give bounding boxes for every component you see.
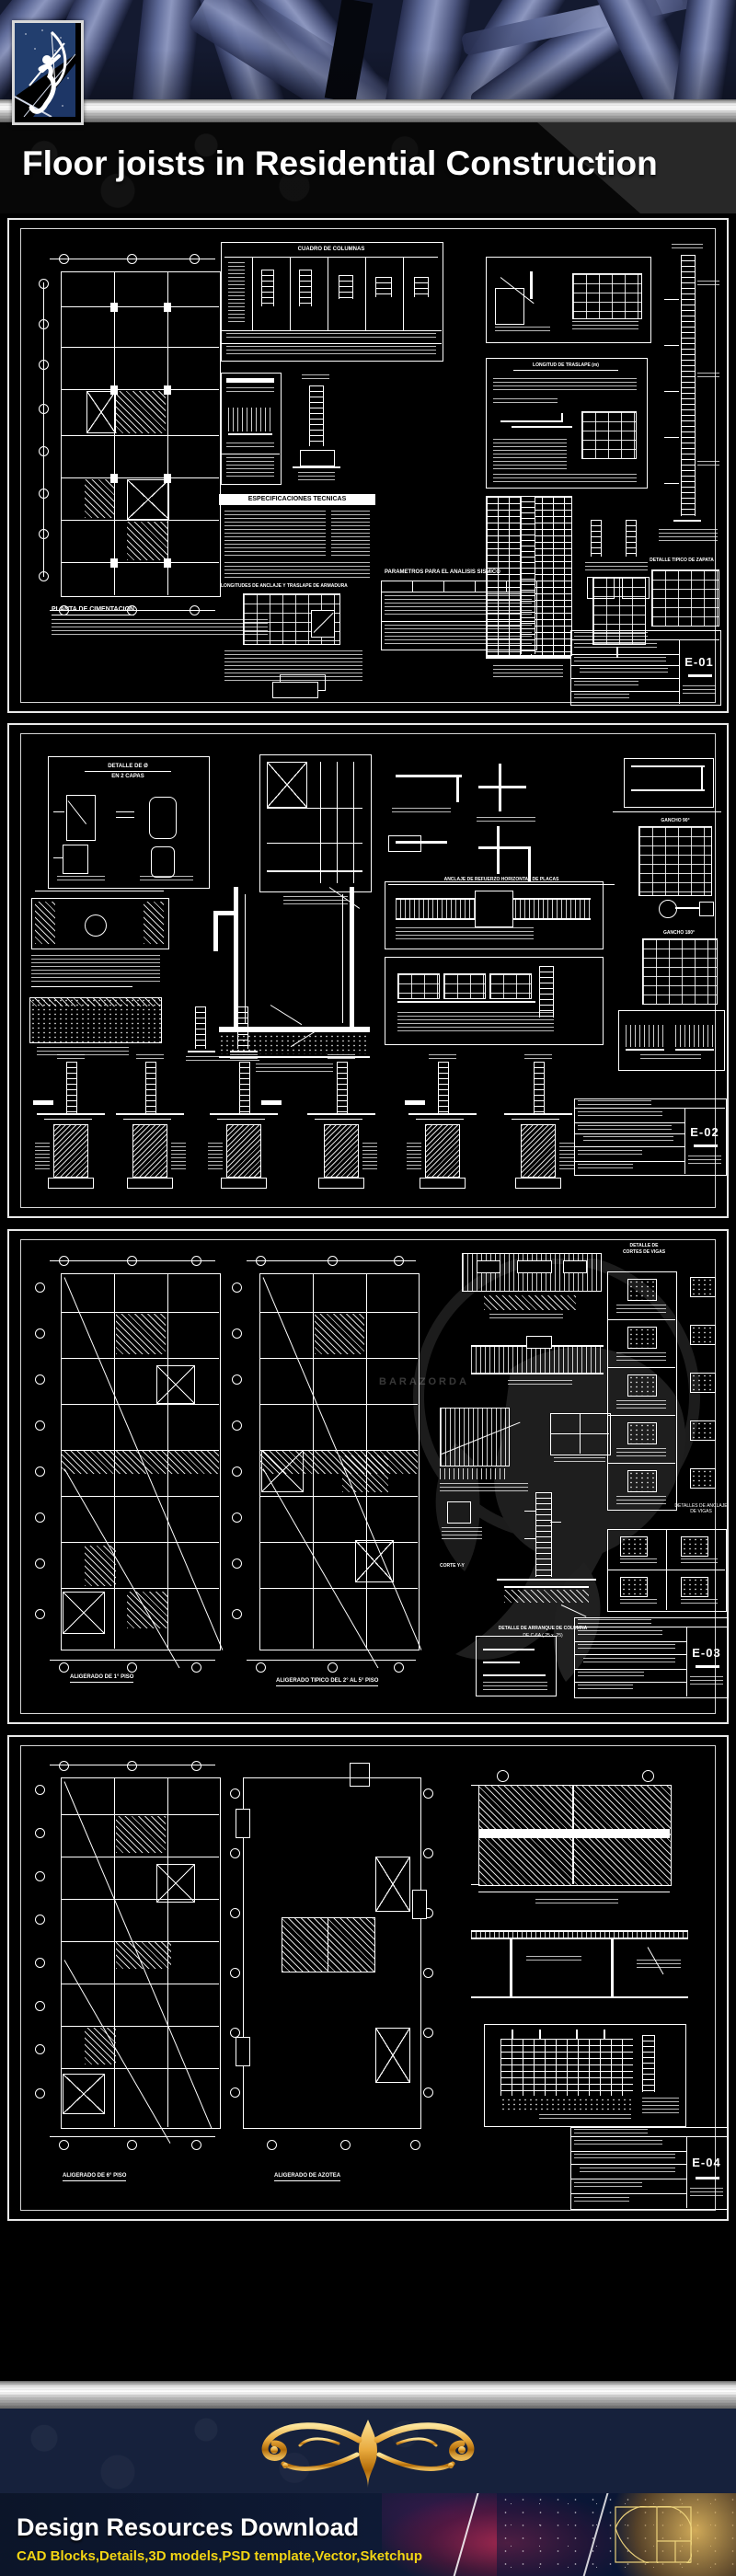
footing-detail	[304, 1054, 383, 1192]
table-title: CUADRO DE COLUMNAS	[221, 247, 442, 253]
slab-plan-mini	[550, 1413, 613, 1466]
caption-plan1: ALIGERADO DE 6° PISO	[63, 2173, 126, 2181]
tank-slab-plan	[471, 1770, 684, 1908]
caption-plan2: ALIGERADO DE AZOTEA	[274, 2173, 340, 2181]
column-section-c6a	[447, 1501, 471, 1524]
column-schedule-table: CUADRO DE COLUMNAS	[221, 242, 443, 362]
caption-plan2: ALIGERADO TIPICO DEL 2° AL 5° PISO	[276, 1678, 378, 1686]
joist-plan-sixth-floor	[35, 1761, 226, 2155]
lap-length-title: LONGITUD DE TRASLAPE (m)	[513, 363, 618, 371]
footing-detail	[112, 1054, 191, 1192]
footer-title: Design Resources Download	[17, 2513, 359, 2542]
bend-circle-detail	[653, 898, 723, 926]
beam-elevation-detail	[471, 1334, 605, 1393]
sheet-e03: BARAZORDA	[7, 1229, 729, 1724]
zapata-label: DETALLE TIPICO DE ZAPATA	[640, 558, 723, 564]
tank-support-elevation	[471, 1923, 692, 2007]
beam-elevation-box2	[385, 957, 604, 1045]
caption-planta-cimentacion: PLANTA DE CIMENTACION	[52, 606, 134, 615]
ornament-band	[0, 2409, 736, 2493]
sheet-number: E-01	[679, 656, 719, 669]
sheet-e04: ALIGERADO DE 6° PISO ALIGERADO DE AZOTEA	[7, 1735, 729, 2221]
concrete-strip-detail	[29, 997, 164, 1062]
steel-beams-photo	[0, 0, 736, 122]
column-section-detail	[289, 373, 344, 485]
slab-pipe-detail	[31, 891, 175, 999]
two-layer-rebar-detail: DETALLE DE Ø EN 2 CAPAS	[48, 756, 210, 889]
title-block: E-01	[570, 630, 721, 706]
beam-sections-column	[607, 1271, 677, 1511]
footing-comb-detail	[221, 373, 282, 485]
wall-splice-box	[618, 1010, 725, 1071]
footer: Design Resources Download CAD Blocks,Det…	[0, 2493, 736, 2576]
foundation-plan	[37, 253, 225, 616]
metal-divider-bottom	[0, 2381, 736, 2409]
hook180-table	[642, 938, 718, 1005]
footing-detail	[405, 1054, 484, 1192]
fibonacci-spiral-icon	[615, 2506, 692, 2563]
joist-plan-typical-floor	[232, 1255, 429, 1671]
sheet-number: E-03	[686, 1647, 727, 1660]
caption-plan1: ALIGERADO DE 1° PISO	[70, 1674, 133, 1683]
beam-hook-detail	[613, 749, 725, 821]
metal-divider-top	[0, 99, 736, 122]
seismic-params-title: PARAMETROS PARA EL ANALISIS SISMICO	[385, 569, 500, 576]
sheet-e01: PLANTA DE CIMENTACION CUADRO DE COLUMNAS	[7, 218, 729, 713]
hook180-label: GANCHO 180°	[642, 931, 716, 937]
zapata-table	[651, 569, 719, 627]
page-title: Floor joists in Residential Construction	[22, 144, 658, 183]
section-grid-2x2	[607, 1529, 727, 1612]
column-starter-detail	[497, 1492, 604, 1621]
joist-plan-roof	[230, 1761, 434, 2155]
archer-logo	[12, 20, 84, 125]
wall-foundation-box	[484, 2024, 686, 2127]
page: Floor joists in Residential Construction	[0, 0, 736, 2576]
footing-detail	[206, 1054, 285, 1192]
title-block: E-02	[574, 1098, 727, 1176]
joist-plan-first-floor	[35, 1255, 226, 1671]
beam-plan-detail	[462, 1248, 605, 1325]
title-block: E-04	[570, 2127, 729, 2210]
detail-title-line2: EN 2 CAPAS	[85, 774, 171, 780]
gold-flourish-ornament	[232, 2416, 504, 2491]
beam-cuts-label1: DETALLE DE	[605, 1244, 683, 1249]
title-block: E-03	[574, 1617, 729, 1698]
corte-yy-label: CORTE Y-Y	[440, 1564, 465, 1570]
specs-title: ESPECIFICACIONES TECNICAS	[219, 496, 375, 503]
title-band: Floor joists in Residential Construction	[0, 122, 736, 213]
lap-length-box: LONGITUD DE TRASLAPE (m)	[486, 358, 648, 489]
beam-sections-mini	[683, 1271, 727, 1511]
anchorage-heading: LONGITUDES DE ANCLAJE Y TRASLAPE DE ARMA…	[221, 584, 348, 590]
c6a-notes	[442, 1527, 482, 1540]
detail-title-line1: DETALLE DE Ø	[85, 764, 171, 772]
column-splice-detail	[653, 244, 723, 553]
hook90-table	[638, 826, 712, 896]
footing-detail	[33, 1054, 112, 1192]
beam-elevation-box1	[385, 881, 604, 949]
joist-blocking-detail	[440, 1408, 546, 1496]
beam-cuts-label2: CORTES DE VIGAS	[605, 1250, 683, 1256]
bar-entry-details: ANCLAJE DE REFUERZO HORIZONTAL DE PLACAS	[388, 756, 615, 892]
anchor-detail-box	[486, 257, 651, 343]
footer-subtitle: CAD Blocks,Details,3D models,PSD templat…	[17, 2548, 422, 2564]
sheet-number: E-04	[686, 2156, 727, 2169]
sheet-e02: DETALLE DE Ø EN 2 CAPAS	[7, 723, 729, 1218]
beam-anchor-label: DETALLES DE ANCLAJE DE VIGAS	[673, 1503, 729, 1514]
sheet-number: E-02	[684, 1126, 725, 1139]
hook90-label: GANCHO 90°	[638, 819, 712, 824]
footing-detail	[500, 1054, 580, 1192]
technical-specs-panel: ESPECIFICACIONES TECNICAS LONGITUDES DE …	[219, 494, 377, 702]
parapet-step-detail	[476, 1636, 558, 1698]
seismic-params-table	[381, 581, 537, 650]
